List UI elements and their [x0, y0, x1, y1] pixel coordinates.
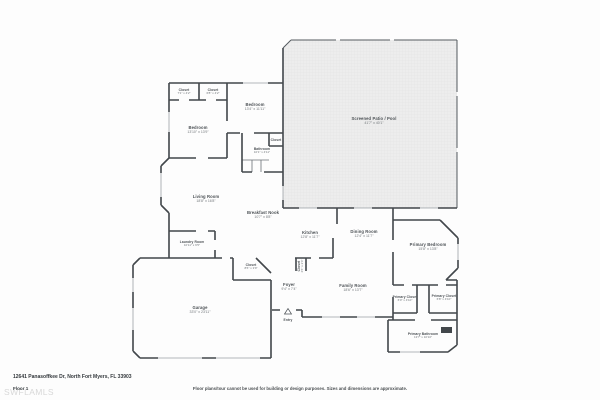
property-address: 12641 Panasoffkee Dr, North Fort Myers, …	[13, 374, 132, 380]
floor-plan-drawing	[0, 0, 600, 400]
watermark-swflamls: SWFLAMLS	[4, 387, 54, 397]
disclaimer-text: Floor plans/tour cannot be used for buil…	[0, 386, 600, 391]
entry-step-icon	[285, 309, 292, 315]
bathroom-fixture-lines	[242, 160, 269, 172]
floor-plan-page: Closet 7'1" x 4'2" Closet 6'8" x 4'2" Be…	[0, 0, 600, 400]
patio-area	[283, 40, 457, 208]
shower-fixture	[441, 327, 452, 333]
floor-label: Floor 1	[13, 386, 28, 391]
